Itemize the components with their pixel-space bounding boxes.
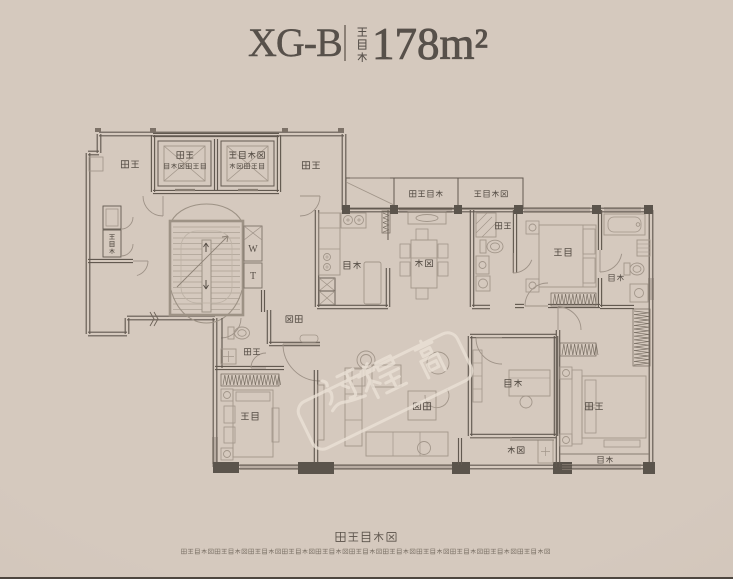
svg-text:W: W (248, 244, 258, 255)
svg-text:T: T (250, 271, 256, 282)
